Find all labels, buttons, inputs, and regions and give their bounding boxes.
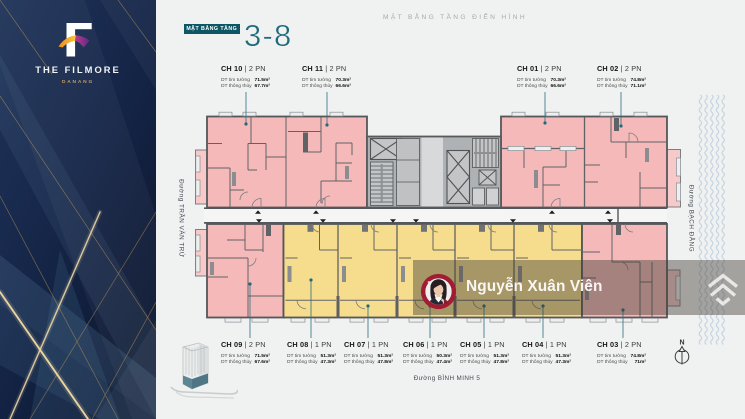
svg-text:N: N (679, 340, 684, 347)
